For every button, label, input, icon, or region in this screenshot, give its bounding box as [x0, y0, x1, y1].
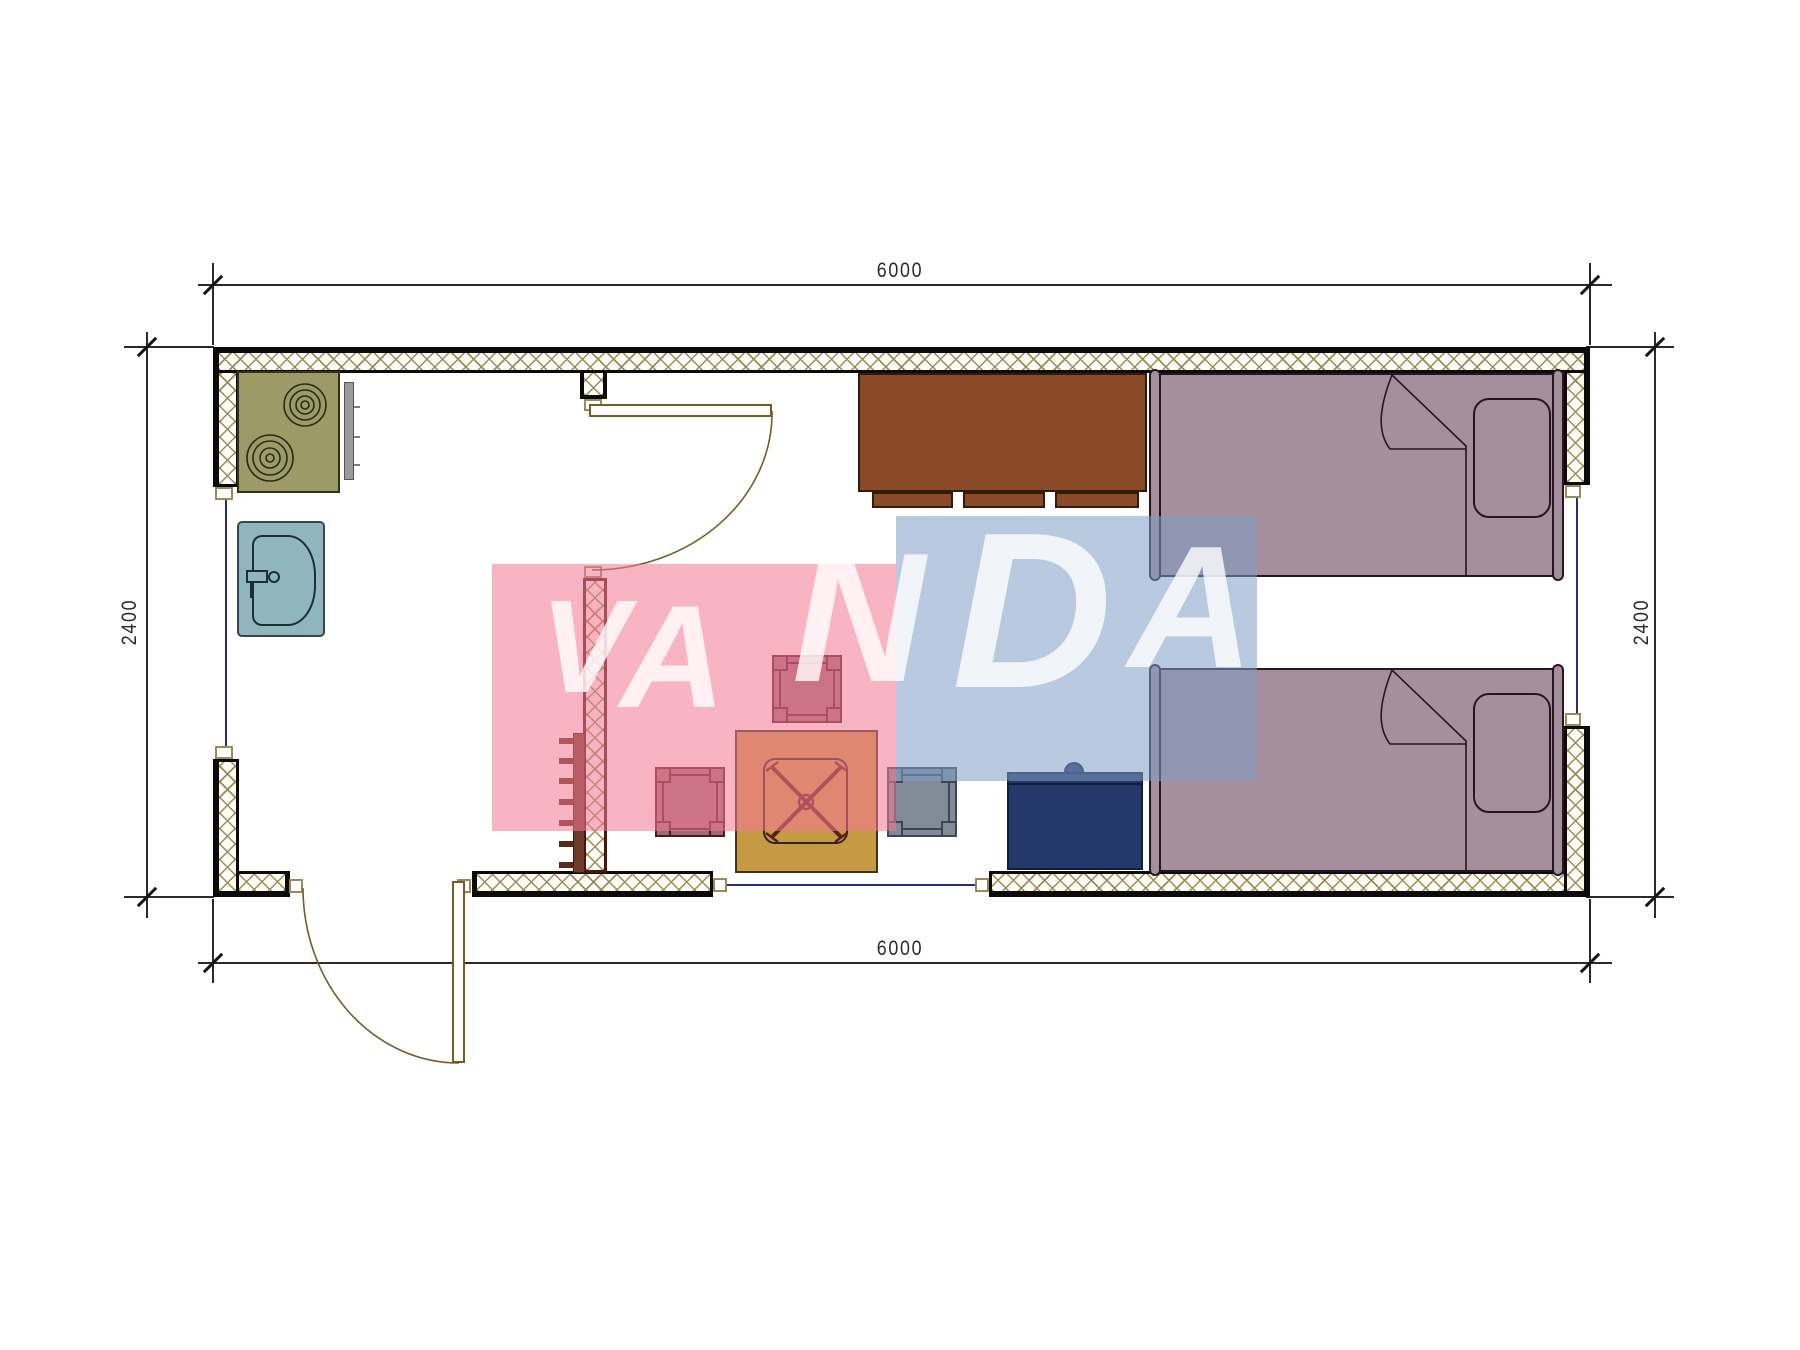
- extension-line: [1586, 346, 1674, 348]
- stool-leg: [709, 767, 725, 783]
- towel-ladder-rail: [573, 733, 585, 873]
- stove-control-panel: [344, 382, 354, 480]
- window-jamb-cap: [215, 746, 233, 759]
- stool-leg: [887, 821, 903, 837]
- towel-ladder-rung: [559, 738, 574, 744]
- dim-line-left: [146, 332, 148, 918]
- stove-panel-ticks: [354, 407, 360, 465]
- window-jamb-cap: [215, 487, 233, 500]
- cabinet-drawer: [872, 492, 953, 508]
- sink-faucet-knob: [268, 571, 280, 583]
- wall-right-upper: [1564, 373, 1590, 485]
- dim-label-left: 2400: [118, 599, 142, 646]
- stool-leg: [887, 767, 903, 783]
- floor-plan-canvas: 6000 6000 2400 2400: [0, 0, 1800, 1350]
- bed-2-footboard: [1552, 664, 1564, 876]
- bed-1-headboard: [1149, 369, 1161, 581]
- bed-1-footboard: [1552, 369, 1564, 581]
- towel-ladder-rung: [559, 820, 574, 826]
- stool-leg: [772, 655, 788, 671]
- extension-line: [212, 899, 214, 983]
- window-bottom: [727, 884, 975, 886]
- window-jamb-cap: [1565, 713, 1581, 726]
- sink-faucet: [246, 570, 268, 583]
- wall-left-upper: [213, 373, 239, 487]
- exterior-door-swing-arc: [303, 888, 459, 1063]
- dim-label-bottom: 6000: [877, 937, 924, 961]
- cabinet-drawer: [1055, 492, 1139, 508]
- bed-2-pillow: [1473, 693, 1551, 813]
- window-jamb-cap: [1565, 485, 1581, 498]
- exterior-door-leaf: [452, 881, 465, 1063]
- door-jamb-cap: [289, 879, 303, 893]
- window-left: [225, 500, 227, 746]
- bed-2-headboard: [1149, 664, 1161, 876]
- stool-leg: [941, 821, 957, 837]
- wall-top: [213, 347, 1590, 373]
- towel-ladder-rung: [559, 799, 574, 805]
- stool-leg: [655, 767, 671, 783]
- extension-line: [1589, 899, 1591, 983]
- watermark-letter-a1: A: [620, 584, 725, 730]
- sink-faucet-stem: [250, 583, 252, 598]
- cabinet: [858, 373, 1147, 492]
- dim-label-right: 2400: [1630, 599, 1654, 646]
- extension-line: [1589, 263, 1591, 345]
- wall-bottom-right: [989, 871, 1564, 897]
- dim-line-bottom: [198, 962, 1612, 964]
- towel-ladder-rung: [559, 778, 574, 784]
- interior-door-jamb: [580, 373, 607, 399]
- extension-line: [124, 346, 214, 348]
- interior-door-leaf: [589, 404, 772, 417]
- window-jamb-cap: [975, 878, 989, 892]
- dim-line-right: [1654, 332, 1656, 918]
- stool-leg: [709, 821, 725, 837]
- dim-line-top: [198, 284, 1612, 286]
- cabinet-drawer: [963, 492, 1045, 508]
- bed-1-pillow: [1473, 398, 1551, 518]
- nightstand-lid-line: [1009, 783, 1141, 785]
- stool-top: [772, 655, 842, 723]
- towel-ladder-rung: [559, 841, 574, 847]
- wall-left-lower: [213, 759, 239, 897]
- stool-leg: [826, 707, 842, 723]
- stool-leg: [826, 655, 842, 671]
- stool-left: [655, 767, 725, 837]
- coffee-table-top-edge: [763, 758, 848, 844]
- wall-bottom-middle: [472, 871, 713, 897]
- wall-right-lower: [1564, 726, 1590, 897]
- dim-label-top: 6000: [877, 259, 924, 283]
- stove: [237, 371, 340, 493]
- stool-leg: [655, 821, 671, 837]
- towel-ladder-rung: [559, 862, 574, 868]
- wall-bottom-left-leg: [239, 871, 290, 897]
- partition-wall: [583, 578, 607, 873]
- stool-leg: [941, 767, 957, 783]
- extension-line: [1586, 896, 1674, 898]
- watermark-letter-d: D: [952, 500, 1112, 722]
- nightstand: [1007, 772, 1143, 870]
- window-right: [1576, 498, 1578, 713]
- window-jamb-cap: [713, 878, 727, 892]
- interior-door-swing-arc: [592, 411, 772, 570]
- stool-right: [887, 767, 957, 837]
- extension-line: [212, 263, 214, 345]
- partition-end-cap: [584, 566, 602, 578]
- extension-line: [124, 896, 214, 898]
- stool-leg: [772, 707, 788, 723]
- towel-ladder-rung: [559, 758, 574, 764]
